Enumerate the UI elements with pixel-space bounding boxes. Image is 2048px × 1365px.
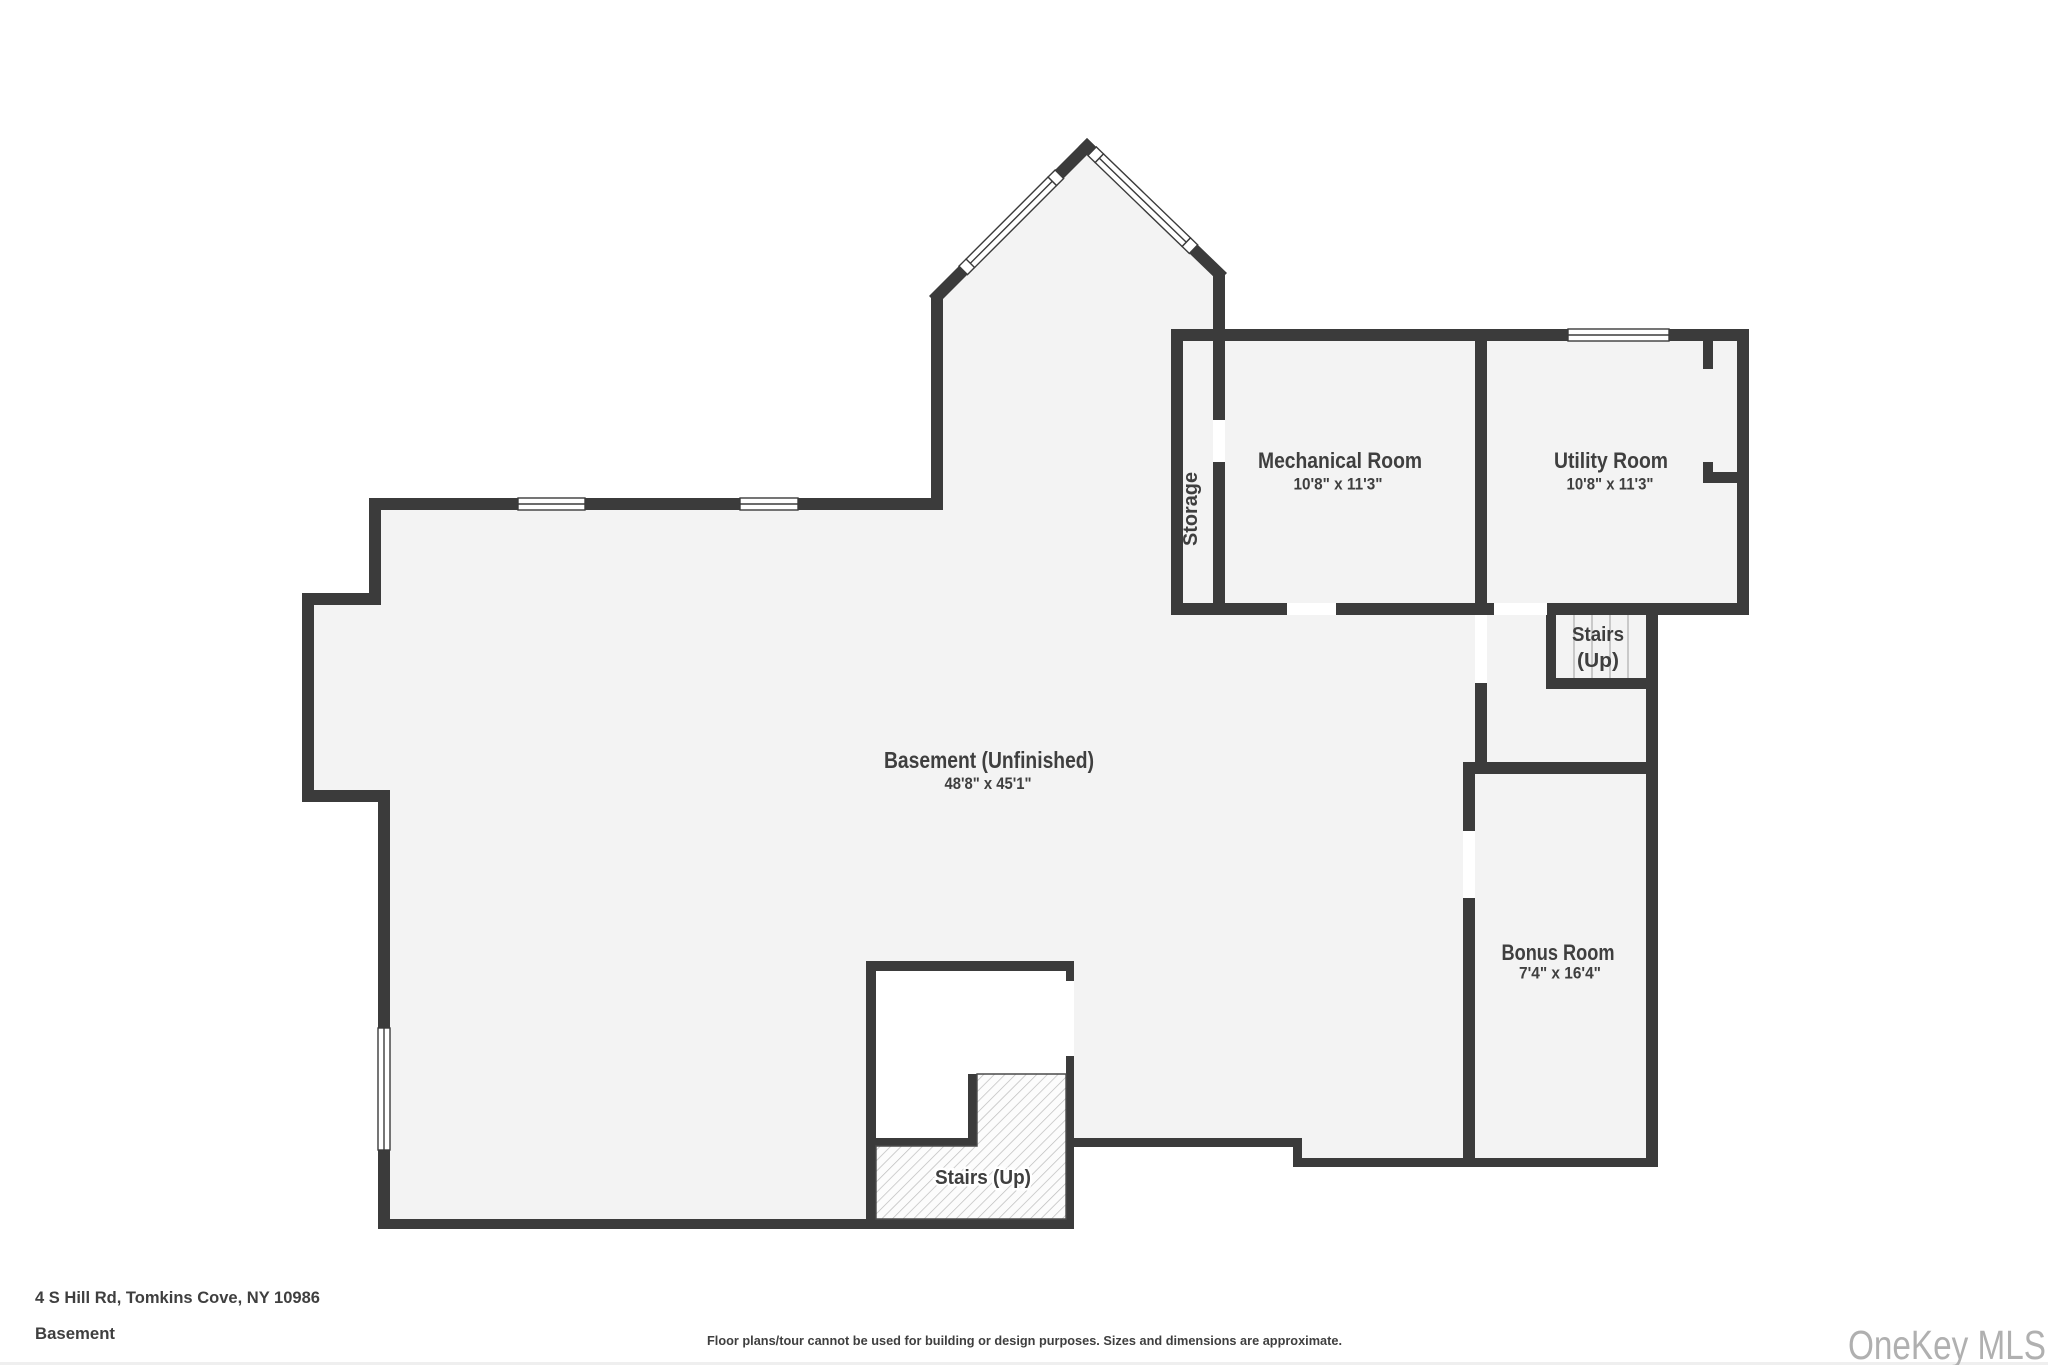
svg-text:Bonus Room: Bonus Room <box>1502 940 1615 965</box>
svg-text:10'8" x 11'3": 10'8" x 11'3" <box>1567 475 1654 494</box>
svg-text:Utility Room: Utility Room <box>1554 448 1668 473</box>
svg-text:4 S Hill Rd, Tomkins Cove, NY: 4 S Hill Rd, Tomkins Cove, NY 10986 <box>35 1288 320 1307</box>
svg-text:OneKey MLS: OneKey MLS <box>1848 1322 2046 1365</box>
svg-text:7'4" x 16'4": 7'4" x 16'4" <box>1519 964 1601 983</box>
svg-text:(Up): (Up) <box>1577 650 1619 672</box>
svg-text:Stairs (Up): Stairs (Up) <box>935 1167 1031 1189</box>
svg-text:48'8" x 45'1": 48'8" x 45'1" <box>945 774 1032 793</box>
svg-text:Storage: Storage <box>1180 472 1202 546</box>
svg-text:Basement (Unfinished): Basement (Unfinished) <box>884 747 1094 773</box>
svg-text:Stairs: Stairs <box>1572 624 1624 646</box>
svg-text:10'8" x 11'3": 10'8" x 11'3" <box>1294 475 1383 494</box>
svg-text:Floor plans/tour cannot be use: Floor plans/tour cannot be used for buil… <box>707 1334 1342 1348</box>
svg-text:Mechanical Room: Mechanical Room <box>1258 448 1422 473</box>
svg-text:Basement: Basement <box>35 1324 115 1343</box>
